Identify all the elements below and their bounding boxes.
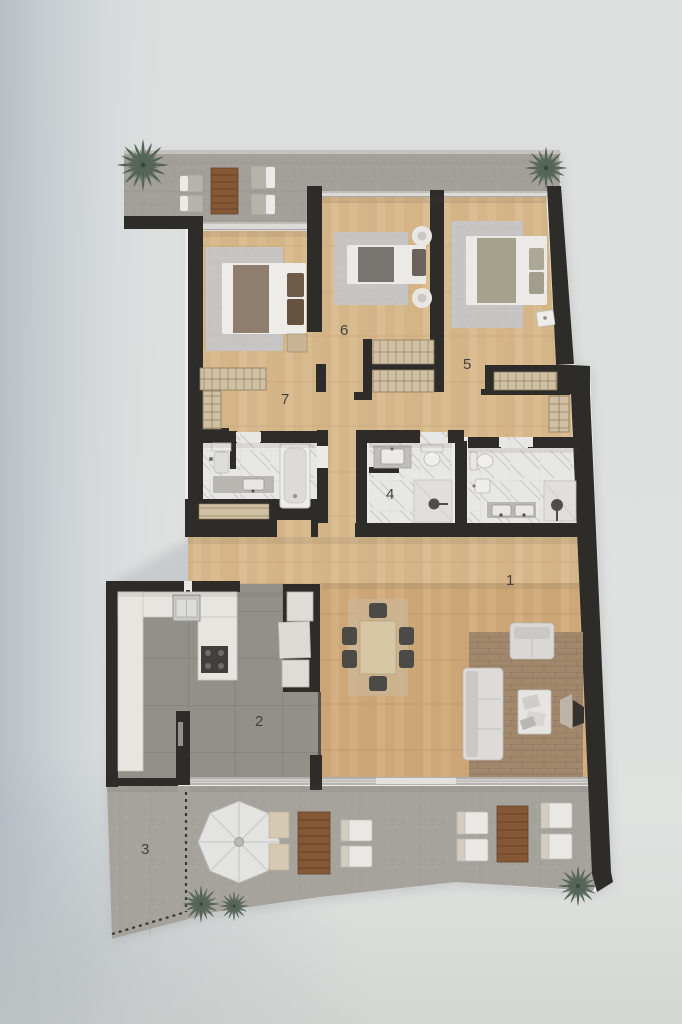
svg-text:6: 6 xyxy=(340,322,348,339)
svg-text:1: 1 xyxy=(506,572,514,589)
svg-text:7: 7 xyxy=(281,391,289,408)
svg-text:3: 3 xyxy=(141,841,149,858)
svg-text:2: 2 xyxy=(255,713,263,730)
svg-text:5: 5 xyxy=(463,356,471,373)
svg-text:4: 4 xyxy=(386,486,394,503)
